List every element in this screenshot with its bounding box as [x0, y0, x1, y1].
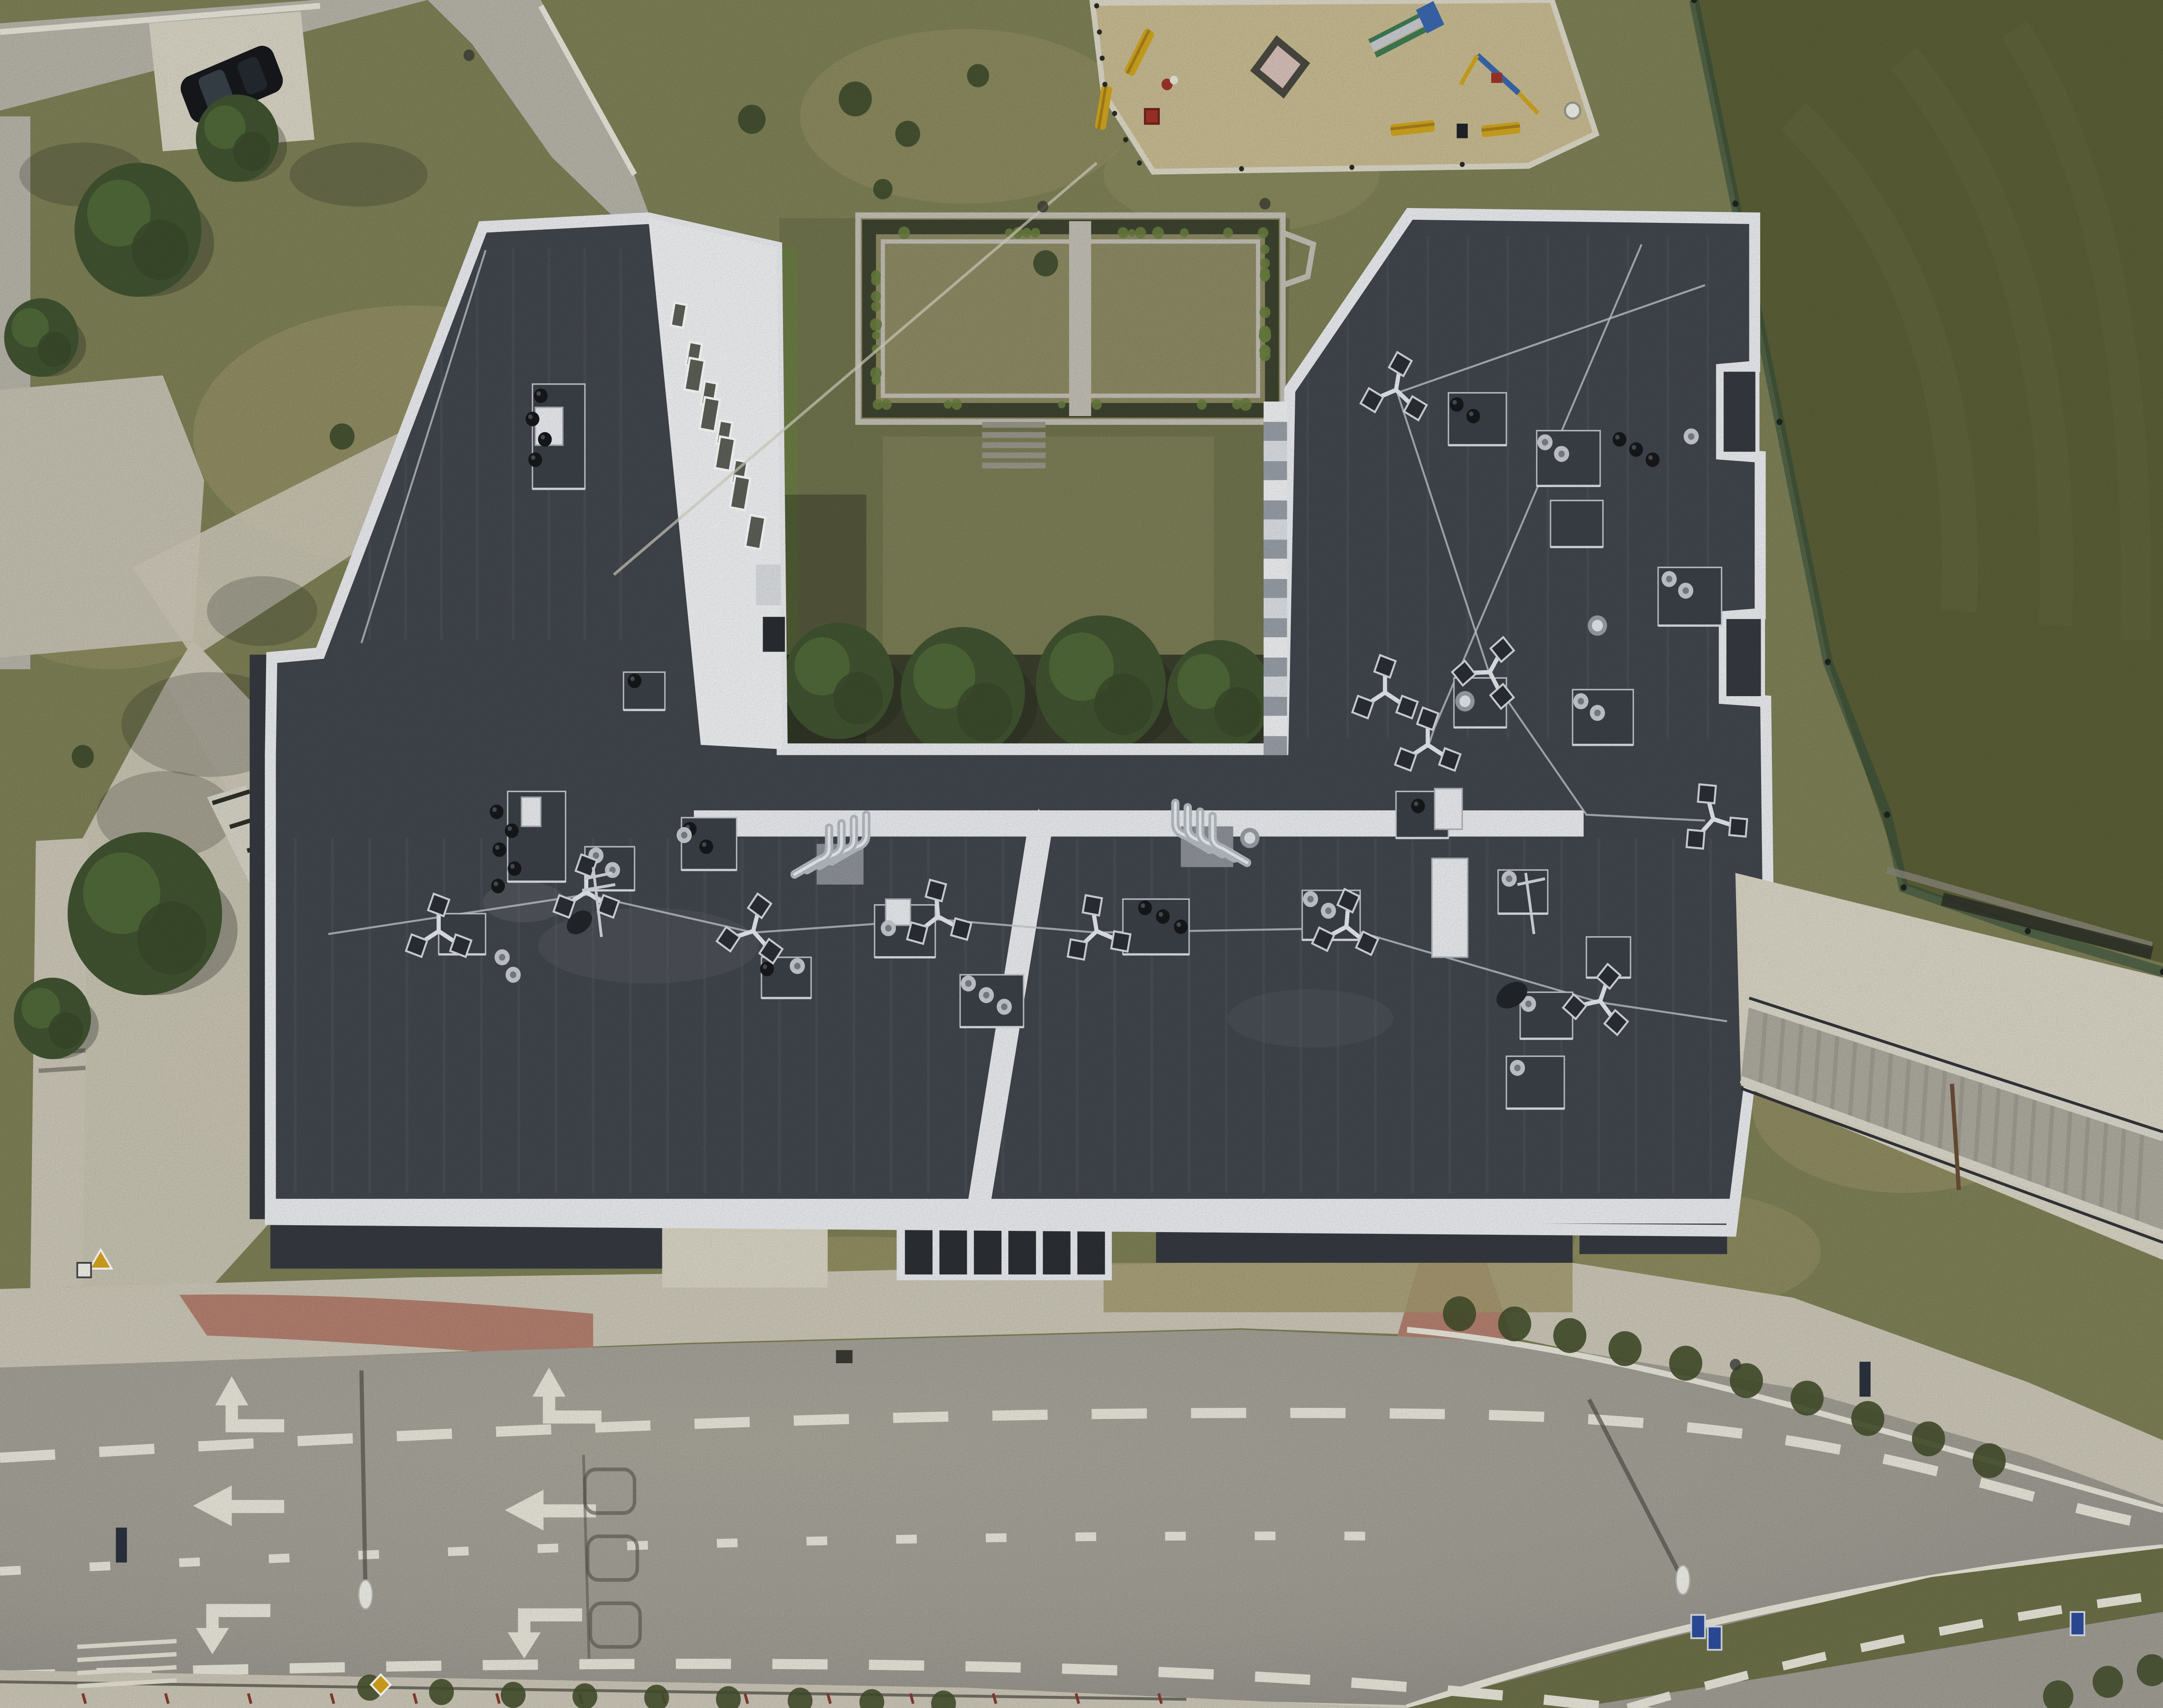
aerial-photo-stage: [0, 0, 2163, 1708]
photo-grain: [0, 0, 2163, 1708]
aerial-photo: [0, 0, 2163, 1708]
